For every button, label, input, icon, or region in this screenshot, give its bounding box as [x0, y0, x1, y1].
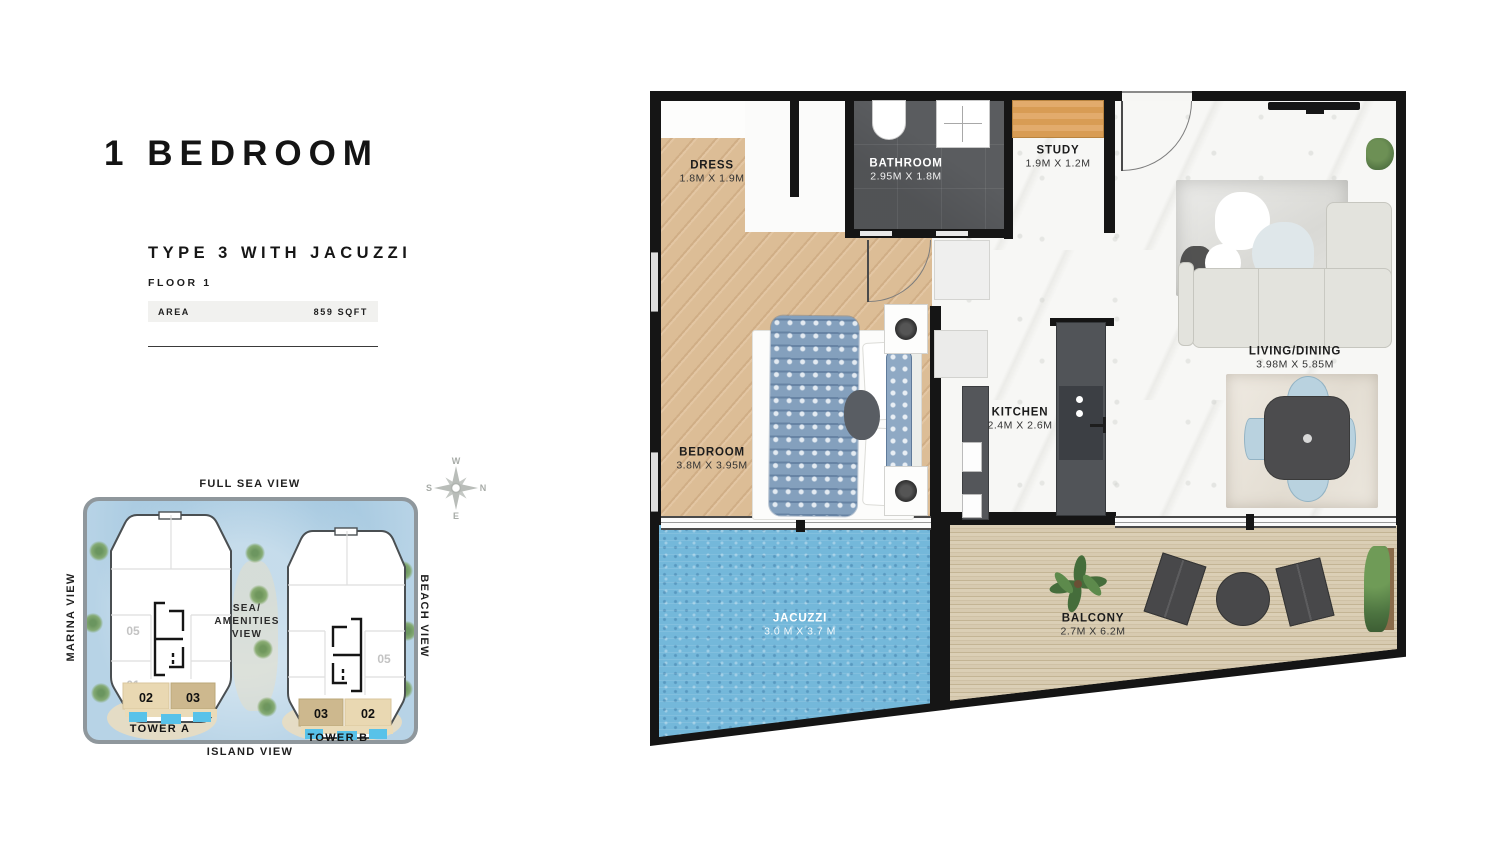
- unit-number-highlight: 03: [186, 691, 200, 705]
- wall-bathroom-left: [845, 91, 854, 236]
- wall-study-right: [1104, 91, 1115, 233]
- unit-type-subtitle: TYPE 3 WITH JACUZZI: [148, 244, 411, 263]
- dress-closet-area: [661, 98, 747, 138]
- wall-jacuzzi-balcony: [930, 516, 943, 710]
- wall-right: [1396, 91, 1406, 518]
- lamp-top: [895, 318, 917, 340]
- study-desk: [1012, 100, 1104, 138]
- view-label-marina: MARINA VIEW: [65, 572, 77, 662]
- window-living-balcony: [1115, 516, 1396, 528]
- stove-knob-1: [1076, 396, 1083, 403]
- floor-number: FLOOR 1: [148, 277, 212, 289]
- bathroom-door-slit-2: [936, 231, 968, 236]
- palm-icon: [89, 541, 109, 561]
- label-living-dining: LIVING/DINING3.98M X 5.85M: [1249, 346, 1341, 371]
- utility-closet: [934, 240, 990, 300]
- balcony-table: [1216, 572, 1270, 626]
- label-jacuzzi: JACUZZI3.0 M X 3.7 M: [764, 613, 836, 638]
- kitchen-cabinet: [962, 494, 982, 518]
- sink-cross-h: [944, 123, 982, 124]
- tv: [1268, 102, 1360, 110]
- label-dress: DRESS1.8M X 1.9M: [679, 160, 744, 185]
- kitchen-sink: [962, 442, 982, 472]
- stove-knob-2: [1076, 410, 1083, 417]
- tower-b-label: TOWER B: [288, 732, 388, 744]
- svg-text:W: W: [452, 456, 461, 466]
- bed-cushion: [844, 390, 880, 440]
- entrance-opening: [1122, 91, 1192, 101]
- unit-number: 05: [126, 624, 140, 638]
- window-left-2: [651, 452, 658, 512]
- bedroom-door-leaf: [867, 240, 869, 302]
- view-label-sea-amenities: SEA/ AMENITIES VIEW: [187, 602, 307, 641]
- tv-stand: [1306, 110, 1324, 114]
- dining-table-center: [1303, 434, 1312, 443]
- toilet: [872, 100, 906, 140]
- label-balcony: BALCONY2.7M X 6.2M: [1060, 613, 1125, 638]
- unit-number-highlight: 02: [361, 707, 375, 721]
- label-bathroom: BATHROOM2.95M X 1.8M: [869, 158, 942, 183]
- unit-number-highlight: 03: [314, 707, 328, 721]
- fridge: [934, 330, 988, 378]
- balcony-plant: [1048, 554, 1108, 614]
- bathroom-sink: [936, 100, 990, 148]
- wall-dress: [790, 91, 799, 197]
- area-row: AREA 859 SQFT: [148, 301, 378, 322]
- sofa-seat: [1192, 268, 1392, 348]
- palm-icon: [83, 613, 103, 633]
- view-label-full-sea: FULL SEA VIEW: [125, 478, 375, 490]
- window-left-1: [651, 252, 658, 312]
- sink-cross-v: [962, 106, 963, 142]
- label-study: STUDY1.9M X 1.2M: [1025, 145, 1090, 170]
- label-kitchen: KITCHEN2.4M X 2.6M: [987, 407, 1052, 432]
- svg-text:E: E: [453, 511, 459, 520]
- balcony-hedge: [1364, 546, 1390, 632]
- view-label-beach: BEACH VIEW: [418, 571, 430, 661]
- sofa-armrest: [1178, 262, 1194, 346]
- tower-a-label: TOWER A: [110, 723, 210, 735]
- compass-icon: W N E S: [424, 456, 488, 520]
- svg-text:N: N: [480, 483, 487, 493]
- window-stub-2: [1246, 514, 1254, 530]
- label-bedroom: BEDROOM3.8M X 3.95M: [676, 447, 747, 472]
- entrance-door-leaf: [1121, 101, 1123, 171]
- faucet-body: [1103, 417, 1106, 433]
- area-label: AREA: [158, 307, 190, 317]
- palm-icon: [257, 697, 277, 717]
- palm-icon: [245, 543, 265, 563]
- area-value: 859 SQFT: [314, 307, 368, 317]
- view-label-island: ISLAND VIEW: [125, 746, 375, 758]
- lamp-bottom: [895, 480, 917, 502]
- page-title: 1 BEDROOM: [104, 134, 379, 174]
- divider-line: [148, 346, 378, 347]
- unit-number: 05: [377, 652, 391, 666]
- floor-plan-page: 1 BEDROOM TYPE 3 WITH JACUZZI FLOOR 1 AR…: [0, 0, 1500, 854]
- palm-icon: [253, 639, 273, 659]
- bathroom-door-slit-1: [860, 231, 892, 236]
- svg-text:S: S: [426, 483, 432, 493]
- unit-number-highlight: 02: [139, 691, 153, 705]
